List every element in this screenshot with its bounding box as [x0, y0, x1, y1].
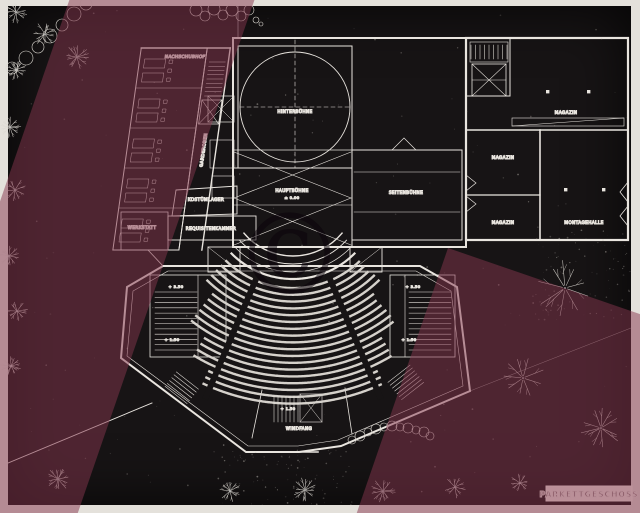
grain — [557, 292, 558, 293]
grain — [601, 38, 603, 40]
grain — [417, 274, 419, 276]
tree-icon — [220, 482, 239, 501]
grain — [404, 276, 405, 277]
main-stage-room — [233, 168, 352, 247]
grain — [558, 244, 559, 245]
grain — [293, 487, 295, 489]
grain — [483, 268, 484, 269]
grain — [297, 93, 298, 94]
grain — [243, 460, 245, 462]
grain — [444, 430, 445, 431]
grain — [293, 499, 294, 500]
stair-run — [388, 365, 424, 400]
chair — [169, 60, 173, 63]
room-label-kostuemlager: KOSTÜMLAGER — [188, 196, 224, 203]
grain — [239, 455, 240, 456]
grain — [226, 491, 227, 492]
grain — [230, 487, 232, 489]
grain — [127, 348, 129, 350]
grain — [553, 239, 554, 240]
chair — [162, 109, 166, 112]
grain — [257, 103, 259, 105]
grain — [156, 406, 157, 407]
grain — [217, 478, 219, 480]
grain — [466, 111, 467, 112]
room-label-magazin: MAGAZIN — [555, 110, 578, 116]
grain — [373, 334, 374, 335]
grain — [625, 245, 626, 246]
grain — [221, 332, 222, 333]
level-mark: + 3.50 — [169, 284, 184, 289]
grain — [557, 304, 559, 306]
grain — [440, 415, 441, 416]
grain — [594, 295, 596, 297]
grain — [160, 401, 161, 402]
grain — [349, 466, 350, 467]
grain — [383, 496, 384, 497]
grain — [613, 269, 614, 270]
grain — [265, 486, 266, 487]
room-label-garderoben: GARDEROBEN — [199, 133, 210, 167]
grain — [322, 490, 323, 491]
grain — [590, 293, 591, 294]
grain — [613, 258, 614, 259]
door-swing-icon — [392, 138, 416, 150]
tree-icon — [6, 302, 28, 320]
grain — [82, 79, 83, 80]
grain — [285, 94, 286, 95]
grain — [396, 260, 398, 262]
chair — [168, 69, 172, 72]
grain — [571, 232, 572, 233]
column — [546, 90, 549, 93]
grain — [253, 457, 254, 458]
magazine-wing-outline — [466, 38, 628, 240]
tree-icon — [294, 478, 315, 501]
grain — [277, 489, 278, 490]
grain — [626, 366, 627, 367]
grain — [558, 256, 559, 257]
grain — [376, 182, 377, 183]
grain — [586, 239, 587, 240]
grain — [303, 481, 304, 482]
grain — [24, 147, 25, 148]
grain — [222, 503, 223, 504]
grain — [213, 451, 214, 452]
grain — [609, 288, 610, 289]
grain — [297, 450, 298, 451]
grain — [335, 450, 336, 451]
grain — [345, 451, 346, 452]
grain — [224, 471, 226, 473]
stair-tread — [165, 386, 187, 403]
grain — [535, 314, 536, 315]
room-label-werkstatt: WERKSTATT — [128, 225, 157, 231]
grain — [546, 269, 548, 271]
grain — [503, 177, 504, 178]
grain — [275, 487, 276, 488]
shrub-icon — [253, 17, 259, 23]
grain — [430, 183, 431, 184]
stair-run — [163, 372, 199, 407]
grain — [286, 464, 287, 465]
grain — [613, 317, 614, 318]
grain — [397, 163, 398, 164]
grain — [592, 272, 593, 273]
grain — [297, 467, 299, 469]
grain — [538, 132, 539, 133]
desk — [136, 113, 158, 122]
stage-level-mark: ± 0.00 — [285, 195, 300, 200]
chair — [158, 140, 162, 143]
stage-house-outline — [233, 38, 466, 247]
grain — [148, 475, 149, 476]
room-label-magazin: MAGAZIN — [492, 220, 515, 226]
grain — [239, 483, 241, 485]
grain — [548, 295, 549, 296]
grain — [316, 435, 317, 436]
desk — [127, 179, 149, 188]
grain — [262, 480, 263, 481]
grain — [272, 58, 274, 60]
tree-icon — [49, 469, 68, 488]
grain — [603, 231, 604, 232]
shrub-icon — [80, 0, 92, 10]
grain — [324, 414, 325, 415]
grain — [215, 91, 216, 92]
grain — [342, 476, 343, 477]
grain — [618, 261, 619, 262]
grain — [569, 262, 570, 263]
grain — [604, 245, 605, 246]
grain — [186, 315, 187, 316]
grain — [622, 233, 624, 235]
grain — [293, 486, 295, 488]
grain — [179, 448, 181, 450]
grain — [176, 110, 177, 111]
stair-tread — [163, 389, 185, 406]
grain — [341, 502, 342, 503]
grain — [393, 176, 394, 177]
grain — [608, 280, 609, 281]
grain — [557, 205, 559, 207]
grain — [401, 52, 402, 53]
grain — [399, 439, 400, 440]
shrub-icon — [67, 7, 81, 21]
grain — [401, 115, 403, 117]
grain — [235, 166, 236, 167]
grain — [584, 315, 585, 316]
grain — [444, 272, 445, 273]
grain — [596, 313, 597, 314]
grain — [549, 236, 551, 238]
grain — [558, 274, 559, 275]
tree-icon — [1, 117, 21, 138]
grain — [324, 493, 325, 494]
grain — [621, 314, 622, 315]
grain — [225, 498, 226, 499]
grain — [299, 461, 300, 462]
grain — [304, 467, 305, 468]
grain — [124, 416, 125, 417]
grain — [554, 125, 555, 126]
grain — [94, 358, 95, 359]
grain — [322, 121, 323, 122]
grain — [536, 446, 537, 447]
grain — [34, 312, 35, 313]
grain — [79, 425, 80, 426]
grain — [288, 468, 289, 469]
chair — [151, 189, 155, 192]
grain — [157, 93, 158, 94]
grain — [30, 408, 31, 409]
shrub-icon — [19, 51, 33, 65]
grain — [267, 18, 268, 19]
grain — [564, 308, 565, 309]
seat-row — [217, 271, 369, 302]
grain — [237, 460, 239, 462]
site-boundary-line — [8, 403, 152, 463]
stair-tread — [395, 374, 417, 391]
stair-tread — [390, 368, 412, 385]
grain — [539, 301, 540, 302]
grain — [536, 238, 538, 240]
room-label-windfang: WINDFANG — [286, 426, 312, 432]
grain — [110, 453, 111, 454]
room-label-hinterbuehne: HINTERBÜHNE — [277, 108, 312, 115]
grain — [311, 503, 312, 504]
grain — [602, 412, 603, 413]
grain — [351, 501, 353, 503]
grain — [333, 476, 334, 477]
grain — [224, 460, 225, 461]
grain — [611, 310, 612, 311]
grain — [421, 491, 423, 493]
grain — [152, 307, 153, 308]
grain — [345, 471, 346, 472]
chair — [152, 180, 156, 183]
shrub-icon — [403, 423, 413, 433]
grain — [116, 10, 117, 11]
grain — [538, 319, 539, 320]
site-boundary-line — [470, 328, 631, 391]
grain — [150, 482, 151, 483]
grain — [232, 451, 233, 452]
grain — [550, 310, 551, 311]
tree-icon — [445, 478, 465, 497]
room-label-nachschubhof: NACHSCHUBHOF — [164, 54, 206, 60]
grain — [257, 480, 258, 481]
grain — [266, 464, 268, 466]
grain — [65, 370, 66, 371]
grain — [255, 452, 256, 453]
door-swing-icon — [466, 175, 476, 212]
grain — [211, 123, 212, 124]
desk — [138, 99, 160, 108]
door-swing-icon — [620, 182, 628, 226]
grain — [617, 284, 619, 286]
grain — [543, 310, 544, 311]
grain — [323, 497, 325, 499]
tree-icon — [67, 46, 89, 69]
grain — [273, 208, 274, 209]
grain — [305, 459, 306, 460]
grain — [561, 267, 563, 269]
tree-icon — [511, 474, 527, 491]
grain — [544, 319, 546, 321]
grain — [561, 272, 562, 273]
tree-icon — [581, 408, 617, 447]
stair-tread — [399, 380, 421, 397]
grain — [578, 441, 579, 442]
stair-tread — [176, 372, 198, 389]
grain — [517, 174, 519, 176]
grain — [500, 14, 502, 16]
grain — [332, 303, 334, 305]
grain — [410, 441, 412, 443]
grain — [223, 485, 225, 487]
grain — [299, 489, 300, 490]
grain — [285, 496, 287, 498]
grain — [576, 261, 577, 262]
room-label-requisitenkammer: REQUISITENKAMMER — [186, 226, 236, 232]
room-label-montagehalle: MONTAGEHALLE — [564, 220, 603, 226]
column — [602, 188, 605, 191]
grain — [251, 454, 253, 456]
grain — [264, 459, 265, 460]
grain — [547, 312, 549, 314]
grain — [492, 438, 493, 439]
grain — [307, 189, 308, 190]
grain — [227, 482, 228, 483]
grain — [297, 455, 298, 456]
seat-row — [212, 276, 374, 309]
grain — [223, 444, 225, 446]
grain — [303, 492, 304, 493]
chair — [161, 118, 165, 121]
grain — [337, 483, 338, 484]
grain — [36, 221, 38, 223]
grain — [532, 302, 534, 304]
grain — [31, 431, 32, 432]
grain — [498, 284, 500, 286]
stair-tread — [397, 377, 419, 394]
grain — [291, 465, 292, 466]
grain — [535, 294, 536, 295]
grain — [64, 118, 66, 120]
grain — [241, 458, 242, 459]
grain — [491, 155, 492, 156]
shrub-icon — [259, 22, 263, 26]
grain — [607, 235, 608, 236]
shrub-icon — [244, 5, 254, 15]
grain — [325, 463, 327, 465]
shrub-icon — [419, 427, 429, 437]
grain — [615, 92, 616, 93]
grain — [604, 386, 605, 387]
grain — [545, 289, 546, 290]
grain — [296, 474, 297, 475]
chair — [144, 238, 148, 241]
grain — [253, 482, 254, 483]
stair-tread — [402, 382, 424, 399]
grain — [50, 313, 52, 315]
grain — [537, 227, 538, 228]
grain — [610, 251, 611, 252]
chair — [163, 100, 167, 103]
grain — [477, 145, 478, 146]
desk — [125, 193, 147, 202]
stair-tread — [167, 383, 189, 400]
grain — [186, 149, 188, 151]
shrub-icon — [200, 11, 210, 21]
grain — [101, 186, 102, 187]
grain — [106, 135, 107, 136]
grain — [530, 116, 532, 118]
grain — [261, 387, 262, 388]
generated-detail — [0, 0, 630, 505]
grain — [256, 476, 258, 478]
grain — [278, 461, 279, 462]
room-label-seitenbuehne: SEITENBÜHNE — [389, 189, 423, 196]
grain — [474, 472, 475, 473]
grain — [245, 460, 246, 461]
grain — [93, 12, 95, 14]
chair — [167, 78, 171, 81]
grain — [475, 94, 476, 95]
grain — [625, 254, 626, 255]
grain — [340, 456, 341, 457]
grain — [595, 29, 597, 31]
tree-icon — [504, 359, 543, 395]
grain — [567, 237, 569, 239]
grain — [292, 51, 293, 52]
orchestra-pit-arc — [244, 233, 342, 256]
room-label-hauptbuehne: HAUPTBÜHNE — [275, 187, 308, 194]
grain — [45, 364, 47, 366]
grain — [556, 319, 557, 320]
grain — [85, 458, 86, 459]
grain — [267, 499, 268, 500]
level-mark: + 3.50 — [406, 284, 421, 289]
grain — [569, 301, 570, 302]
grain — [605, 251, 607, 253]
grain — [543, 246, 544, 247]
grain — [452, 98, 453, 99]
chair — [157, 149, 161, 152]
grain — [623, 274, 625, 276]
tree-icon — [0, 246, 18, 265]
plan-sheet: NACHSCHUBHOF GARDEROBEN KOSTÜMLAGER REQU… — [0, 0, 640, 513]
grain — [519, 315, 520, 316]
grain — [602, 239, 604, 241]
grain — [334, 190, 335, 191]
grain — [490, 80, 491, 81]
grain — [626, 117, 627, 118]
grain — [287, 502, 289, 504]
grain — [556, 257, 557, 258]
grain — [53, 252, 54, 253]
grain — [541, 287, 542, 288]
room-label-magazin: MAGAZIN — [492, 155, 515, 161]
grain — [615, 258, 616, 259]
grain — [497, 266, 498, 267]
grain — [294, 154, 295, 155]
grain — [324, 502, 325, 503]
grain — [162, 158, 163, 159]
level-mark: + 1.50 — [281, 406, 296, 411]
grain — [276, 464, 278, 466]
